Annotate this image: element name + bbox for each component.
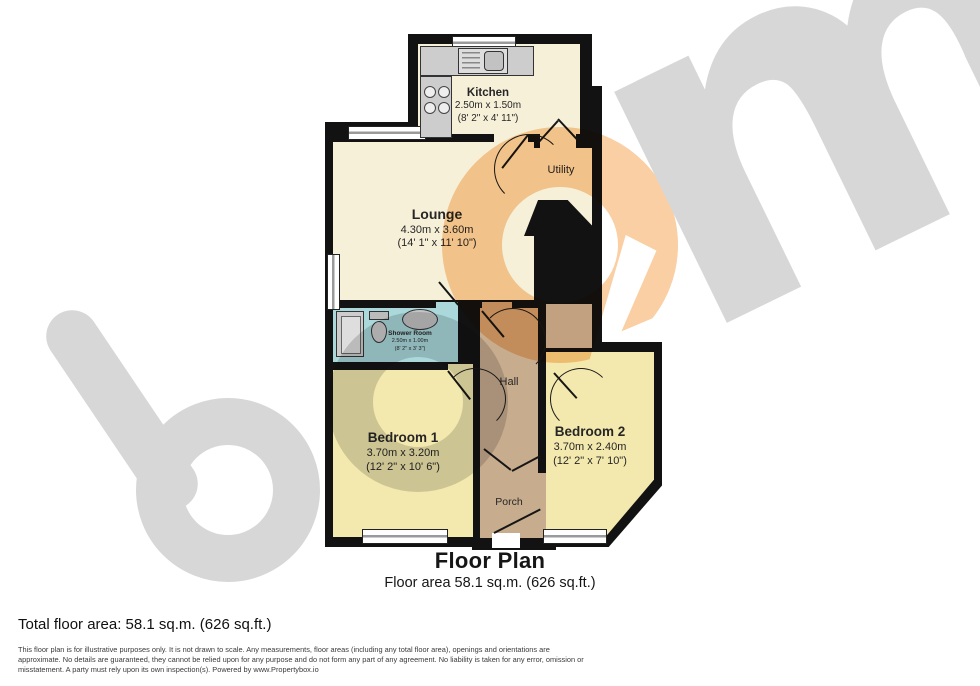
door-gap-shower xyxy=(436,302,458,312)
label-hall: Hall xyxy=(480,376,538,390)
total-floor-area: Total floor area: 58.1 sq.m. (626 sq.ft.… xyxy=(18,616,271,633)
room-name: Utility xyxy=(526,164,596,178)
plan-floor-area: Floor area 58.1 sq.m. (626 sq.ft.) xyxy=(290,575,690,591)
room-dims-imperial: (12' 2" x 7' 10") xyxy=(520,455,660,469)
label-utility: Utility xyxy=(526,164,596,178)
kitchen-sink-bowl-icon xyxy=(484,51,504,71)
label-porch: Porch xyxy=(480,496,538,509)
window-lounge-top xyxy=(348,126,426,140)
kitchen-drainer-icon xyxy=(462,52,480,70)
label-bedroom1: Bedroom 1 3.70m x 3.20m (12' 2" x 10' 6"… xyxy=(331,430,475,474)
room-name: Bedroom 1 xyxy=(331,430,475,447)
room-name: Hall xyxy=(480,376,538,390)
disclaimer-line: approximate. No details are guaranteed, … xyxy=(18,655,958,665)
label-kitchen: Kitchen 2.50m x 1.50m (8' 2" x 4' 11") xyxy=(428,86,548,125)
label-shower-room: Shower Room 2.50m x 1.00m (8' 2" x 3' 3"… xyxy=(366,330,454,353)
room-dims-metric: 4.30m x 3.60m xyxy=(363,224,511,238)
toilet-cistern xyxy=(369,311,389,320)
room-dims-imperial: (8' 2" x 4' 11") xyxy=(428,113,548,126)
room-name: Bedroom 2 xyxy=(520,424,660,441)
room-dims-imperial: (8' 2" x 3' 3") xyxy=(366,346,454,353)
room-dims-imperial: (12' 2" x 10' 6") xyxy=(331,461,475,475)
floorplan-page: Kitchen 2.50m x 1.50m (8' 2" x 4' 11") U… xyxy=(0,0,980,686)
label-lounge: Lounge 4.30m x 3.60m (14' 1" x 11' 10") xyxy=(363,206,511,251)
window-lounge-left xyxy=(327,254,340,310)
room-dims-metric: 3.70m x 3.20m xyxy=(331,447,475,461)
room-dims-imperial: (14' 1" x 11' 10") xyxy=(363,237,511,251)
window-bedroom2 xyxy=(543,529,607,544)
room-dims-metric: 2.50m x 1.00m xyxy=(366,338,454,345)
watermark-letter-b-stem xyxy=(36,300,208,520)
floor-store-cupboard xyxy=(546,304,592,348)
plan-title: Floor Plan xyxy=(290,548,690,574)
room-name: Kitchen xyxy=(428,86,548,100)
shower-cubicle-inner xyxy=(341,316,361,354)
room-dims-metric: 2.50m x 1.50m xyxy=(428,100,548,113)
room-name: Lounge xyxy=(363,206,511,224)
wash-basin xyxy=(402,309,438,330)
disclaimer-line: misstatement. A party must rely upon its… xyxy=(18,665,958,675)
door-gap-porch-entry xyxy=(492,533,520,548)
disclaimer-line: This floor plan is for illustrative purp… xyxy=(18,645,958,655)
window-bedroom1 xyxy=(362,529,448,544)
door-arc-bedroom2 xyxy=(550,368,612,430)
door-arc-hall xyxy=(480,308,546,374)
room-name: Shower Room xyxy=(366,330,454,338)
room-dims-metric: 3.70m x 2.40m xyxy=(520,441,660,455)
room-name: Porch xyxy=(480,496,538,509)
disclaimer: This floor plan is for illustrative purp… xyxy=(18,645,958,675)
label-bedroom2: Bedroom 2 3.70m x 2.40m (12' 2" x 7' 10"… xyxy=(520,424,660,468)
